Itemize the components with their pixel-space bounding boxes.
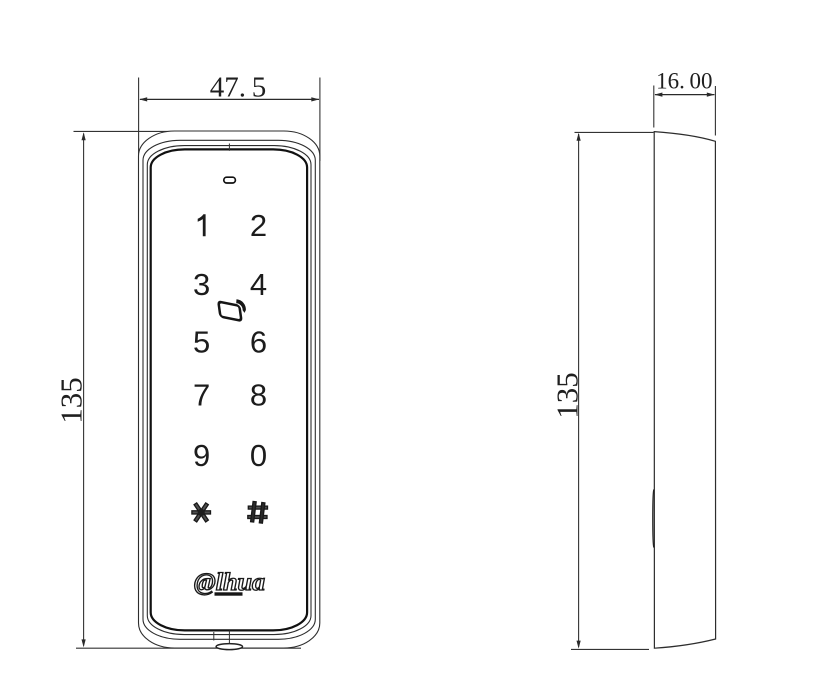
svg-text:9: 9: [193, 438, 210, 473]
svg-text:135: 135: [54, 377, 89, 424]
svg-text:16. 00: 16. 00: [656, 69, 712, 94]
svg-text:6: 6: [250, 324, 267, 359]
svg-text:2: 2: [250, 208, 267, 243]
svg-text:5: 5: [193, 324, 210, 359]
svg-text:135: 135: [550, 372, 585, 419]
svg-text:47. 5: 47. 5: [210, 71, 267, 103]
svg-text:7: 7: [193, 378, 210, 413]
svg-text:3: 3: [193, 267, 210, 302]
svg-text:@lhua: @lhua: [194, 567, 265, 596]
svg-text:4: 4: [250, 267, 267, 302]
svg-text:0: 0: [250, 438, 267, 473]
svg-text:8: 8: [250, 378, 267, 413]
